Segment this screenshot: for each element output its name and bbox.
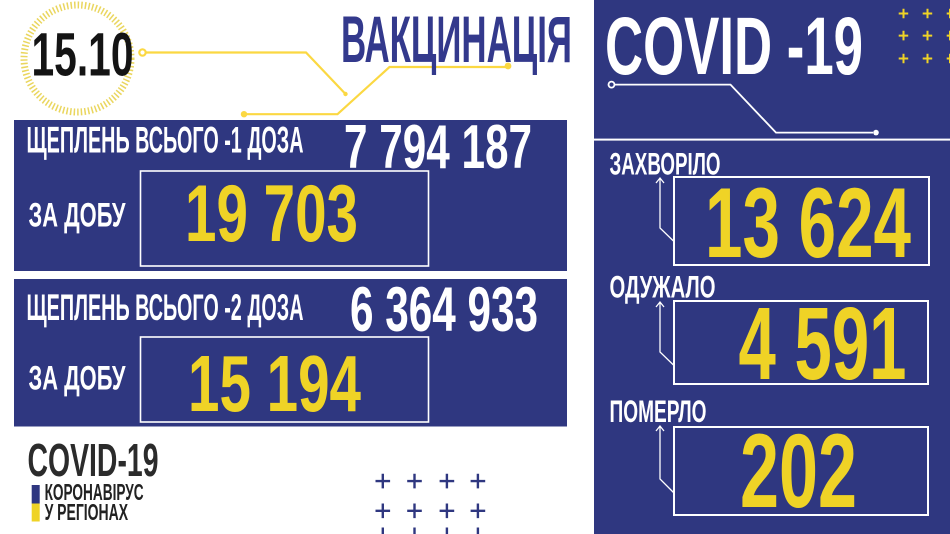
svg-text:15 194: 15 194 [188, 339, 361, 428]
svg-text:COVID -19: COVID -19 [605, 1, 863, 92]
svg-text:ОДУЖАЛО: ОДУЖАЛО [610, 269, 716, 305]
svg-text:ВАКЦИНАЦІЯ: ВАКЦИНАЦІЯ [341, 3, 572, 76]
svg-text:13 624: 13 624 [705, 168, 911, 279]
svg-text:ЗА ДОБУ: ЗА ДОБУ [29, 360, 126, 398]
svg-text:ЩЕПЛЕНЬ ВСЬОГО -2 ДОЗА: ЩЕПЛЕНЬ ВСЬОГО -2 ДОЗА [27, 287, 304, 328]
svg-text:15.10: 15.10 [32, 21, 134, 90]
svg-text:19 703: 19 703 [185, 169, 358, 259]
svg-text:У РЕГІОНАХ: У РЕГІОНАХ [45, 499, 129, 525]
svg-text:ПОМЕРЛО: ПОМЕРЛО [610, 393, 707, 429]
svg-text:ЗА ДОБУ: ЗА ДОБУ [29, 197, 126, 235]
svg-text:ЩЕПЛЕНЬ ВСЬОГО -1 ДОЗА: ЩЕПЛЕНЬ ВСЬОГО -1 ДОЗА [27, 120, 304, 161]
svg-text:4 591: 4 591 [739, 286, 907, 401]
svg-text:202: 202 [740, 413, 857, 530]
svg-text:6 364 933: 6 364 933 [350, 275, 538, 345]
